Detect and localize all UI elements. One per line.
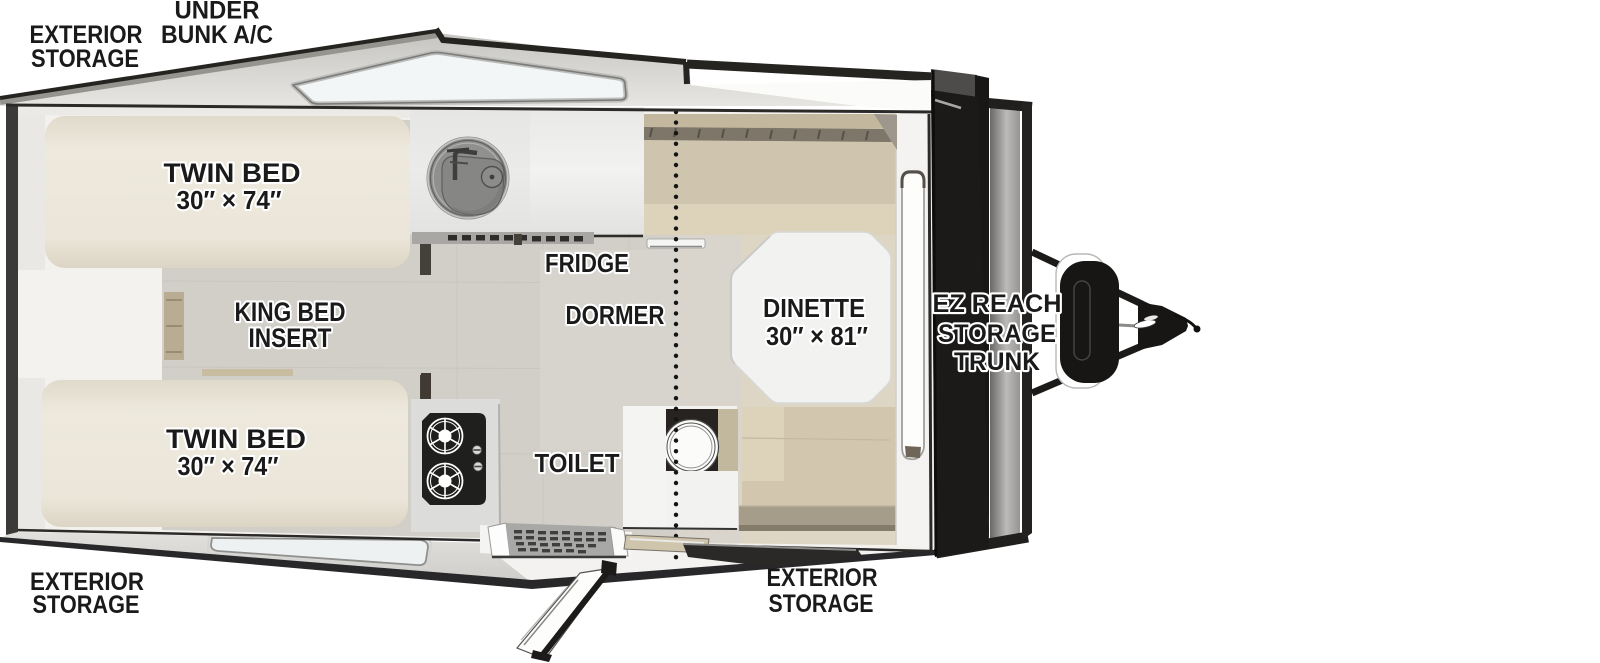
svg-text:STORAGE: STORAGE [769,590,874,618]
svg-text:STORAGE: STORAGE [33,591,140,619]
svg-text:TOILET: TOILET [535,448,620,478]
svg-text:STORAGE: STORAGE [938,320,1056,348]
svg-text:EXTERIOR: EXTERIOR [767,564,878,592]
svg-text:BUNK A/C: BUNK A/C [161,21,273,49]
svg-text:TWIN BED: TWIN BED [164,158,301,188]
svg-text:TRUNK: TRUNK [954,348,1040,376]
svg-text:INSERT: INSERT [249,323,332,353]
svg-text:DORMER: DORMER [566,300,665,330]
svg-text:FRIDGE: FRIDGE [545,248,629,278]
svg-text:EZ REACH: EZ REACH [933,290,1062,318]
svg-text:DINETTE: DINETTE [763,293,865,323]
svg-text:STORAGE: STORAGE [31,45,139,73]
svg-text:30″ × 74″: 30″ × 74″ [177,185,282,215]
svg-text:30″ × 74″: 30″ × 74″ [178,451,279,481]
svg-text:TWIN BED: TWIN BED [166,424,306,454]
svg-text:30″ × 81″: 30″ × 81″ [766,321,868,351]
